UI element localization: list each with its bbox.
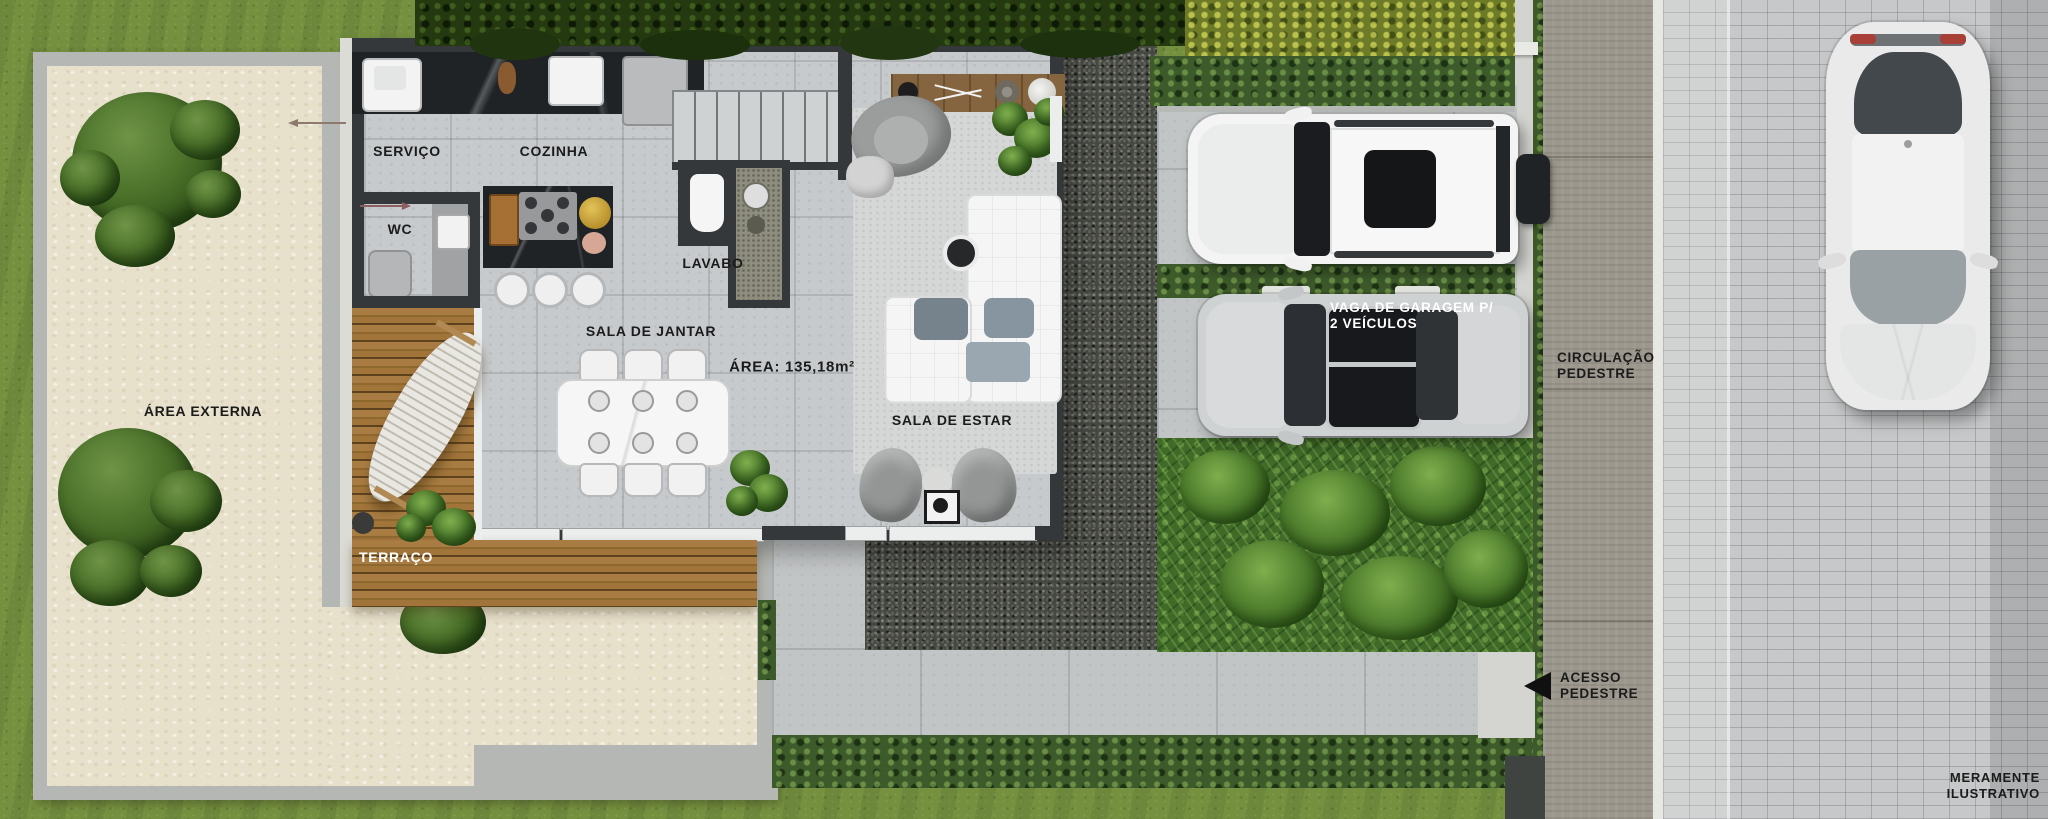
grass-tuft-strip: [758, 600, 776, 680]
console-basket: [995, 80, 1019, 104]
burner: [525, 222, 537, 234]
label-cozinha: COZINHA: [520, 143, 589, 159]
place-setting: [632, 390, 654, 412]
dining-chair: [623, 349, 663, 383]
east-window: [1050, 96, 1062, 162]
deck-top-wall: [352, 296, 480, 308]
laundry-sink-basin: [374, 66, 406, 90]
armchair-seat: [874, 116, 928, 164]
label-area-externa: ÁREA EXTERNA: [144, 403, 262, 419]
tree-canopy-blob: [640, 30, 750, 60]
dining-chair: [667, 463, 707, 497]
south-wall-stub: [1035, 526, 1062, 540]
burner: [525, 197, 537, 209]
label-terraco: TERRAÇO: [359, 549, 433, 565]
sofa-throw: [966, 342, 1030, 382]
place-setting: [676, 390, 698, 412]
floor-plan-rendering: SERVIÇO COZINHA WC LAVABO SALA DE JANTAR…: [0, 0, 2048, 819]
label-area-total: ÁREA: 135,18m²: [729, 359, 855, 376]
car-hood: [1206, 302, 1286, 428]
burner: [557, 197, 569, 209]
path-joint: [1543, 156, 1653, 158]
tree-canopy-blob: [1020, 30, 1140, 58]
suv-roof-rail: [1334, 251, 1494, 258]
suv-spare-tire: [1516, 154, 1550, 224]
wc-arrow-head-icon: [402, 202, 411, 210]
path-joint: [1543, 620, 1653, 622]
stool: [494, 272, 530, 308]
place-setting: [632, 432, 654, 454]
concrete-path-bottom: [772, 650, 1533, 737]
palm-blob: [1180, 450, 1270, 524]
south-wall-stub: [762, 526, 845, 540]
dining-chair: [623, 463, 663, 497]
wc-sink: [436, 214, 470, 250]
stool: [532, 272, 568, 308]
kitchen-sink: [548, 56, 604, 106]
stool: [570, 272, 606, 308]
burner: [541, 209, 554, 222]
label-sala-de-jantar: SALA DE JANTAR: [586, 323, 716, 339]
sedan-taillight: [1850, 34, 1876, 44]
counter-vase: [498, 62, 516, 94]
toilet: [690, 174, 724, 232]
wc-arrow: [360, 205, 404, 207]
dining-plant: [726, 486, 758, 516]
living-glass-door: [889, 526, 1037, 541]
sedan-roof: [1852, 134, 1964, 252]
garage-hedge-top: [1150, 56, 1515, 106]
sedan-rear-glass: [1854, 52, 1962, 136]
fire-table-bowl: [933, 498, 948, 513]
access-arrow-icon: [1524, 672, 1551, 700]
curb-strip: [1653, 0, 1663, 819]
palm-blob: [1280, 470, 1390, 556]
sedan-antenna: [1904, 140, 1912, 148]
label-servico: SERVIÇO: [373, 143, 441, 159]
tree-canopy-blob: [840, 26, 940, 60]
label-disclaimer: MERAMENTEILUSTRATIVO: [1947, 770, 2040, 802]
palm-blob: [1390, 446, 1486, 526]
deck-plant: [432, 508, 476, 546]
concrete-path-south-strip: [772, 540, 865, 650]
sidewalk-light-band: [1663, 0, 1727, 819]
wooden-crate: [489, 194, 519, 246]
gravel-strip-south: [865, 540, 1157, 650]
palm-blob: [1444, 530, 1528, 608]
suv-roof-rail: [1334, 120, 1494, 127]
car-windshield: [1284, 304, 1326, 426]
tree-canopy-blob: [470, 28, 560, 60]
label-wc: WC: [388, 221, 413, 237]
fruit-bowl: [579, 197, 611, 229]
planter-box: [1505, 756, 1545, 819]
deck-pot: [352, 512, 374, 534]
sidewalk-joint-line: [1727, 0, 1730, 819]
living-glass-door: [845, 526, 887, 541]
place-setting: [676, 432, 698, 454]
dining-chair: [579, 463, 619, 497]
path-joint: [1543, 388, 1653, 390]
courtyard-wall-step: [474, 745, 757, 786]
washing-machine: [368, 250, 412, 298]
sofa-cushion: [984, 298, 1034, 338]
staircase: [672, 90, 848, 166]
sedan-taillight: [1940, 34, 1966, 44]
label-sala-de-estar: SALA DE ESTAR: [892, 412, 1012, 428]
suv-windshield: [1294, 122, 1330, 256]
dining-chair: [579, 349, 619, 383]
plate: [582, 232, 606, 254]
lavabo-sink: [742, 182, 770, 210]
sedan-windshield: [1850, 250, 1966, 326]
pouf: [846, 156, 894, 198]
burner: [557, 222, 569, 234]
label-garage: VAGA DE GARAGEM P/2 VEÍCULOS: [1330, 300, 1493, 332]
car-roof-bar: [1326, 362, 1422, 367]
palm-blob: [1340, 556, 1458, 640]
suv-sunroof: [1364, 150, 1436, 228]
place-setting: [588, 432, 610, 454]
sofa-cushion: [914, 298, 968, 340]
sedan-street: [1820, 22, 1996, 410]
suv-hood: [1198, 124, 1294, 254]
lavabo-bowl: [747, 216, 765, 234]
palm-blob: [1220, 540, 1324, 628]
living-plant: [998, 146, 1032, 176]
partition-wall: [838, 38, 852, 180]
entry-arrow-head-icon: [288, 119, 298, 127]
bottom-hedge: [772, 735, 1533, 788]
suv-rear-glass: [1496, 126, 1510, 252]
suv-white: [1188, 110, 1554, 268]
dining-chair: [667, 349, 707, 383]
sidewalk-dark-band: [1990, 0, 2048, 819]
deck-plant: [396, 514, 426, 542]
entry-arrow: [296, 122, 346, 124]
place-setting: [588, 390, 610, 412]
side-table: [943, 235, 979, 271]
label-circulacao-pedestre: CIRCULAÇÃOPEDESTRE: [1557, 350, 1655, 382]
variegated-shrub-band: [1185, 0, 1515, 58]
label-lavabo: LAVABO: [682, 255, 743, 271]
label-acesso-pedestre: ACESSOPEDESTRE: [1560, 670, 1638, 702]
